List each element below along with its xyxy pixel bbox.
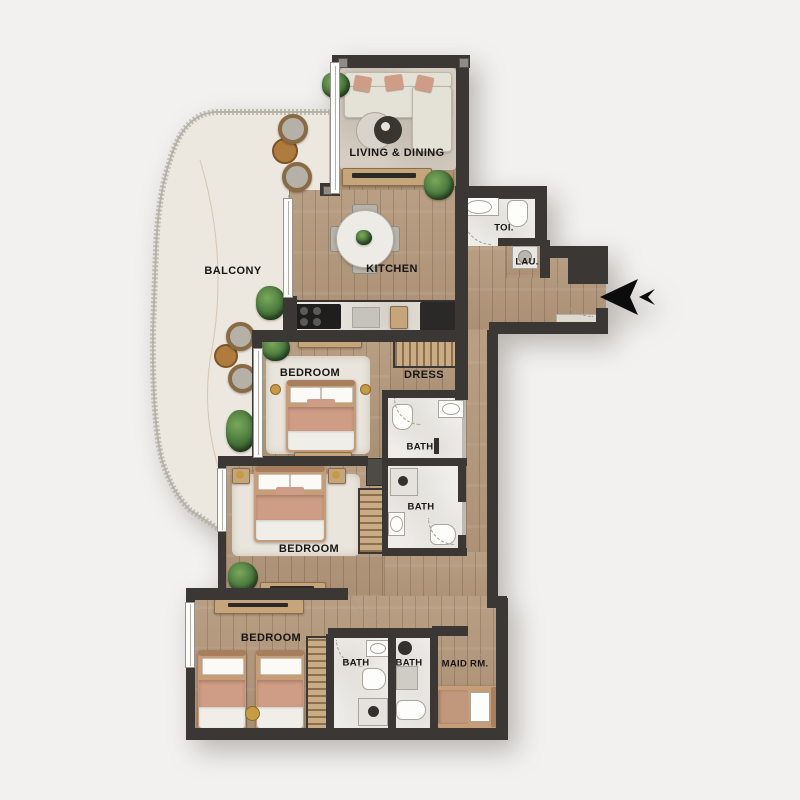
wall [382, 458, 467, 466]
bath-sink [370, 643, 386, 654]
sofa-chaise [412, 86, 452, 152]
wall [186, 588, 348, 600]
wall [332, 55, 470, 68]
lamp [332, 471, 340, 479]
wall [382, 390, 467, 398]
wall [455, 186, 547, 198]
room-label-dress: DRESS [404, 369, 444, 381]
wall [498, 238, 546, 246]
wall [382, 548, 467, 556]
balcony-chair [282, 162, 312, 192]
room-label-bedroom-2: BEDROOM [279, 543, 339, 555]
wall [388, 634, 396, 732]
wall [535, 186, 547, 244]
wall [487, 330, 498, 608]
tv-screen [228, 603, 288, 607]
stove-burner [313, 307, 321, 315]
window [185, 602, 195, 668]
wall [218, 456, 368, 466]
room-label-kitchen: KITCHEN [366, 263, 418, 275]
window [217, 468, 227, 532]
entrance-arrow-icon [598, 276, 658, 318]
balcony-chair [226, 322, 255, 351]
wall [186, 728, 508, 740]
window [253, 348, 263, 458]
maid-bed-blanket [438, 690, 468, 724]
toilet [362, 668, 386, 690]
side-table [245, 706, 260, 721]
room-label-balcony: BALCONY [204, 265, 261, 277]
table-decor [381, 122, 390, 131]
wall [496, 598, 508, 734]
table-plant [356, 230, 372, 245]
wall [326, 634, 334, 732]
room-label-bath-3: BATH [343, 658, 370, 669]
room-label-living-dining: LIVING & DINING [349, 147, 444, 159]
wall [382, 396, 388, 462]
wall [392, 628, 434, 638]
room-label-maid: MAID RM. [442, 659, 489, 670]
sofa-pillow [415, 74, 435, 92]
stove-burner [300, 307, 308, 315]
shower-head [368, 706, 379, 717]
wall-column [459, 58, 469, 68]
lamp [236, 471, 244, 479]
wall [487, 596, 507, 608]
kitchen-sink [352, 307, 380, 328]
stove-burner [300, 318, 308, 326]
room-label-bath-2: BATH [408, 502, 435, 513]
double-bed [286, 380, 356, 452]
room-label-toilet: TOI. [494, 223, 514, 234]
wall [458, 464, 466, 502]
wall-lamp [360, 384, 371, 395]
floor-plan: LIVING & DINING KITCHEN BALCONY TOI. LAU… [0, 0, 800, 800]
single-bed [256, 650, 304, 730]
window [283, 198, 293, 298]
tv-screen [352, 173, 416, 178]
room-label-bedroom-1: BEDROOM [280, 367, 340, 379]
room-label-bedroom-3: BEDROOM [241, 632, 301, 644]
shower [396, 666, 418, 690]
wall [455, 188, 468, 400]
room-label-laundry: LAU. [515, 257, 538, 268]
wall [489, 322, 608, 334]
wall-lamp [270, 384, 281, 395]
single-bed [198, 650, 246, 730]
maid-bed-pillow [470, 692, 490, 722]
room-label-bath-4: BATH [396, 658, 423, 669]
plant [424, 170, 454, 200]
room-label-bath-1: BATH [407, 442, 434, 453]
cutting-board [390, 306, 408, 329]
window [330, 62, 340, 194]
fridge [420, 302, 457, 331]
sofa-pillow [384, 74, 404, 91]
dress-wardrobe [393, 338, 463, 368]
double-bed [254, 466, 326, 542]
stove-burner [313, 318, 321, 326]
toilet-sink [466, 200, 492, 214]
shower-head [398, 476, 408, 486]
toilet [396, 700, 426, 720]
towel-rail [434, 438, 439, 454]
plant [256, 286, 286, 320]
wall [328, 628, 392, 638]
wall [382, 464, 388, 550]
wall [283, 296, 297, 338]
bath-sink [442, 403, 460, 415]
balcony-chair [278, 114, 308, 144]
sofa-pillow [353, 75, 372, 93]
wall [456, 55, 469, 196]
bath-sink [390, 516, 403, 532]
bath-sink-dark [398, 641, 412, 655]
wall [430, 634, 438, 732]
